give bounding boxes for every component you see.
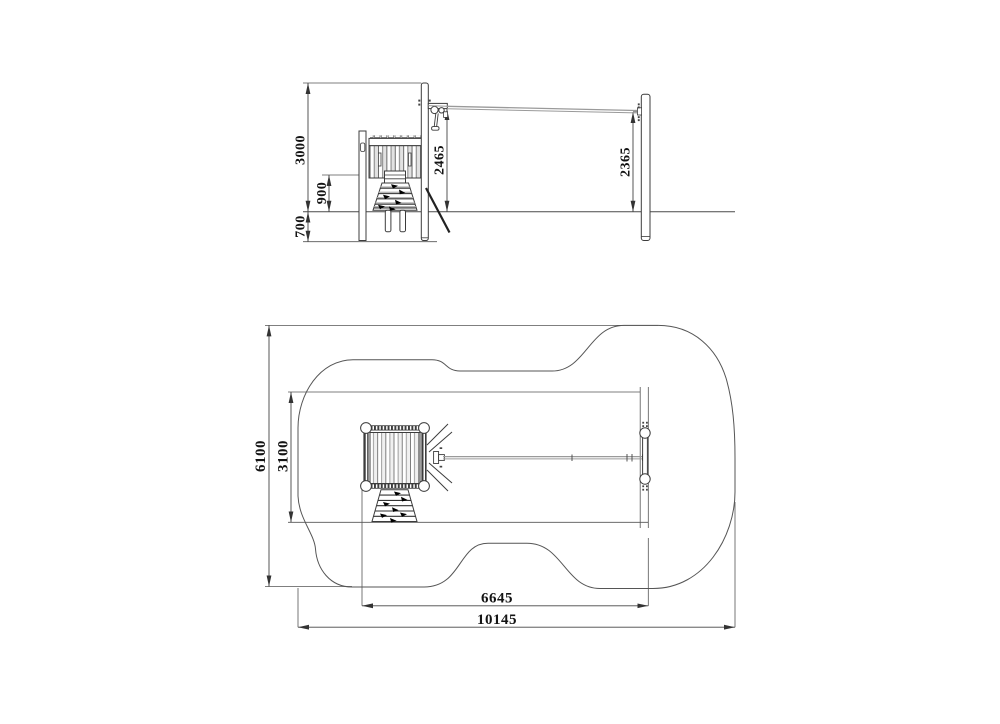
access-ramp <box>373 183 417 232</box>
end-post <box>637 94 650 240</box>
dim-label-foundation-depth: 700 <box>294 215 309 238</box>
rail-left <box>364 431 368 483</box>
dim-label-platform-height: 900 <box>315 182 330 205</box>
crossbar <box>643 438 648 475</box>
rail-top <box>368 426 422 430</box>
elevation-view: 3000 900 700 2465 2365 <box>294 83 736 242</box>
post-bottom-left <box>361 481 372 492</box>
tower-plan <box>361 423 452 492</box>
end-post-top <box>640 428 650 438</box>
dim-label-safety-zone-width: 6100 <box>253 440 269 472</box>
cable-clamp <box>637 108 641 115</box>
dim-label-mast-height: 3000 <box>294 135 309 165</box>
doorway-platform <box>385 171 406 183</box>
ramp-plan <box>372 490 417 524</box>
post-top-left <box>361 423 372 434</box>
technical-drawing: 3000 900 700 2465 2365 <box>0 0 1000 724</box>
drawing-sheet: 3000 900 700 2465 2365 <box>0 0 1000 724</box>
ramp-leg-right <box>400 210 406 232</box>
trolley-plan <box>434 452 439 464</box>
post-top-right <box>419 423 430 434</box>
wall-top-rail <box>369 138 424 145</box>
ramp-leg-left <box>385 210 391 232</box>
dim-label-span-length: 6645 <box>481 591 513 607</box>
rail-bottom <box>368 484 422 488</box>
handle-left <box>378 153 381 166</box>
cable-plan <box>443 454 647 462</box>
handle-right <box>408 153 411 166</box>
post-bottom-right <box>419 481 430 492</box>
dim-label-cable-height-start: 2465 <box>433 145 448 175</box>
dim-label-safety-zone-length: 10145 <box>477 612 517 628</box>
dim-label-frame-width: 3100 <box>276 440 292 472</box>
end-post-bottom <box>640 474 650 484</box>
dim-label-cable-height-end: 2365 <box>619 147 634 177</box>
cable <box>428 106 641 113</box>
grip-hole <box>361 143 365 152</box>
deck-planks <box>370 433 420 484</box>
rail-right <box>422 431 426 483</box>
plan-view: 6100 3100 6645 10145 <box>253 325 735 627</box>
cable-trolley <box>428 103 447 130</box>
anchor-brace <box>426 188 450 233</box>
